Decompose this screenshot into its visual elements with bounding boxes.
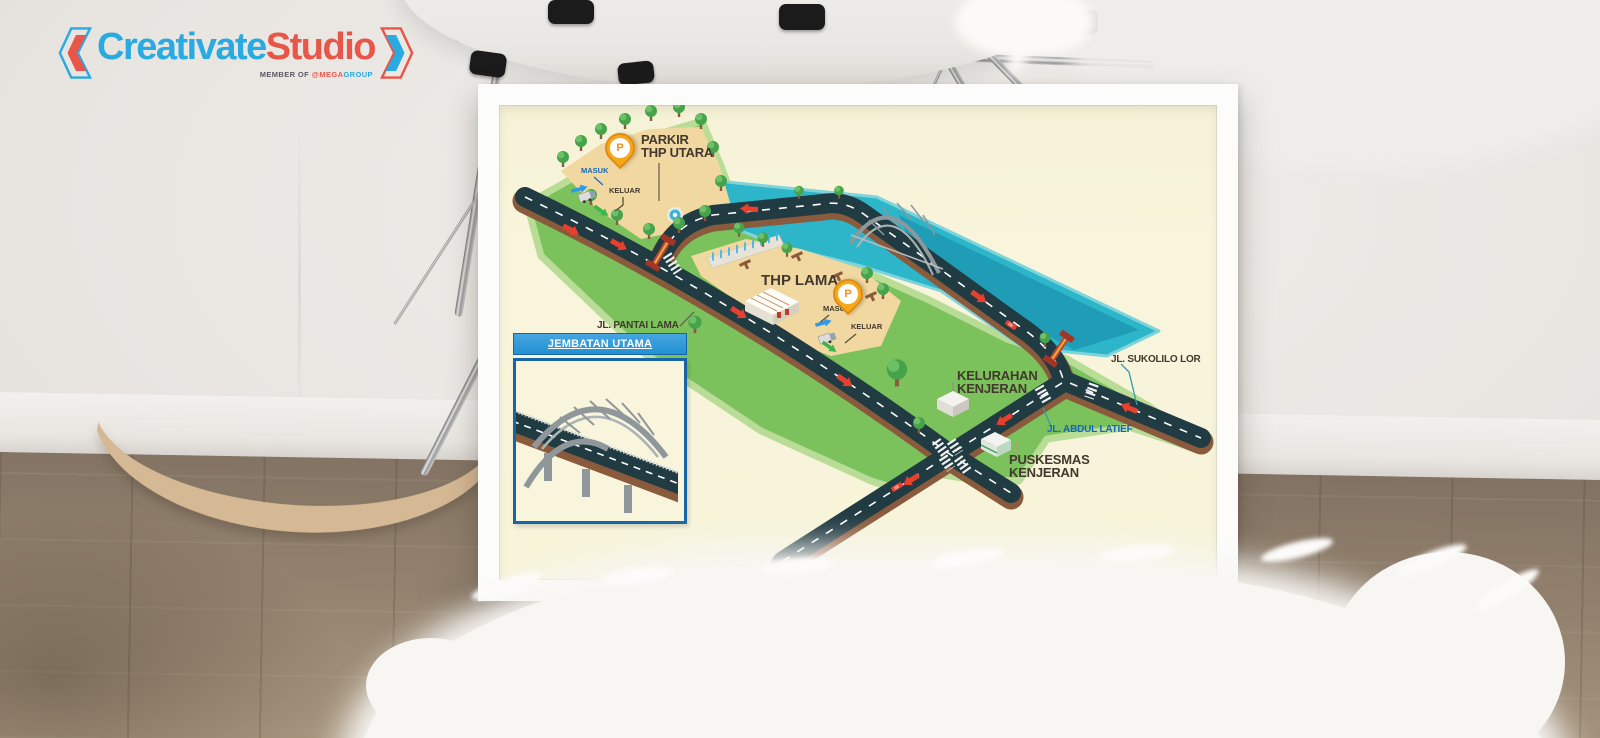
inset-bridge-illustration (513, 358, 687, 524)
chair-rubber-mount (617, 60, 655, 86)
picture-frame: PARKIR THP UTARA MASUK KELUAR THP LAMA M… (478, 84, 1238, 601)
logo-tagline: MEMBER OF @MEGAGROUP (260, 71, 373, 79)
label-thp-lama: THP LAMA (761, 273, 838, 288)
label-parkir-thp-utara: PARKIR THP UTARA (641, 133, 713, 160)
bridge-detail-drawing (516, 361, 678, 515)
label-kelurahan-kenjeran: KELURAHAN KENJERAN (957, 369, 1038, 396)
chair-rubber-mount (469, 50, 508, 79)
chevron-left-icon (58, 26, 92, 80)
label-puskesmas-kenjeran: PUSKESMAS KENJERAN (1009, 453, 1090, 480)
label-masuk-north: MASUK (581, 167, 609, 175)
tagline-suffix: GROUP (343, 70, 373, 79)
map-poster: PARKIR THP UTARA MASUK KELUAR THP LAMA M… (499, 105, 1217, 580)
room-scene: CreativateStudio MEMBER OF @MEGAGROUP (0, 0, 1600, 738)
logo-title-part2: Studio (266, 26, 375, 68)
label-jl-abdul-latief: JL. ABDUL LATIEF (1047, 425, 1133, 435)
label-jl-sukolilo-lor: JL. SUKOLILO LOR (1111, 355, 1201, 365)
creativate-studio-logo: CreativateStudio MEMBER OF @MEGAGROUP (58, 26, 414, 80)
chair-rubber-mount (548, 0, 594, 24)
parking-pin-letter: P (610, 138, 630, 158)
parking-pin-letter: P (838, 284, 858, 304)
tagline-member: MEMBER OF (260, 70, 309, 79)
tagline-brand: @MEGA (312, 70, 344, 79)
chair-rubber-mount (779, 4, 825, 30)
inset-title-banner: JEMBATAN UTAMA (513, 333, 687, 355)
chevron-right-icon (380, 26, 414, 80)
inset-title: JEMBATAN UTAMA (548, 338, 652, 350)
label-jl-pantai-lama: JL. PANTAI LAMA (597, 321, 679, 331)
label-keluar-south: KELUAR (851, 323, 882, 331)
label-keluar-north: KELUAR (609, 187, 640, 195)
logo-title-part1: Creativate (97, 26, 266, 68)
inset-jembatan-utama: JEMBATAN UTAMA (513, 333, 691, 524)
fur-rug-blob (366, 638, 496, 733)
logo-title: CreativateStudio MEMBER OF @MEGAGROUP (97, 28, 375, 78)
